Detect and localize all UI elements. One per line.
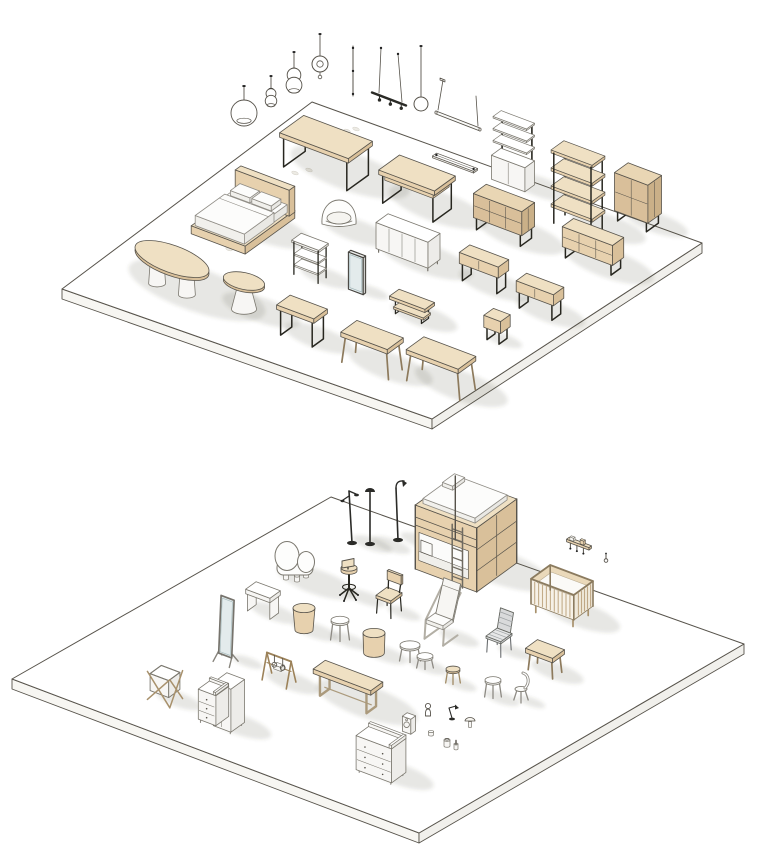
pendant-light-tube — [435, 78, 481, 131]
cup — [429, 730, 434, 736]
pendant-light-bell — [286, 51, 302, 93]
pendant-light-disc — [312, 33, 328, 79]
pendant-light-linear — [372, 47, 406, 110]
jar — [444, 738, 450, 747]
pendant-light-rod — [352, 46, 354, 96]
pendant-light-sphere — [414, 45, 428, 111]
toy-figure — [425, 703, 430, 716]
speaker — [402, 713, 415, 735]
pendant-light-bell-small — [265, 75, 277, 107]
isometric-furniture-scene — [0, 0, 768, 864]
wall-rack — [567, 536, 592, 555]
wall-hook — [604, 553, 608, 563]
furniture-catalog-render — [0, 0, 768, 864]
pendant-light-globe — [231, 85, 257, 126]
